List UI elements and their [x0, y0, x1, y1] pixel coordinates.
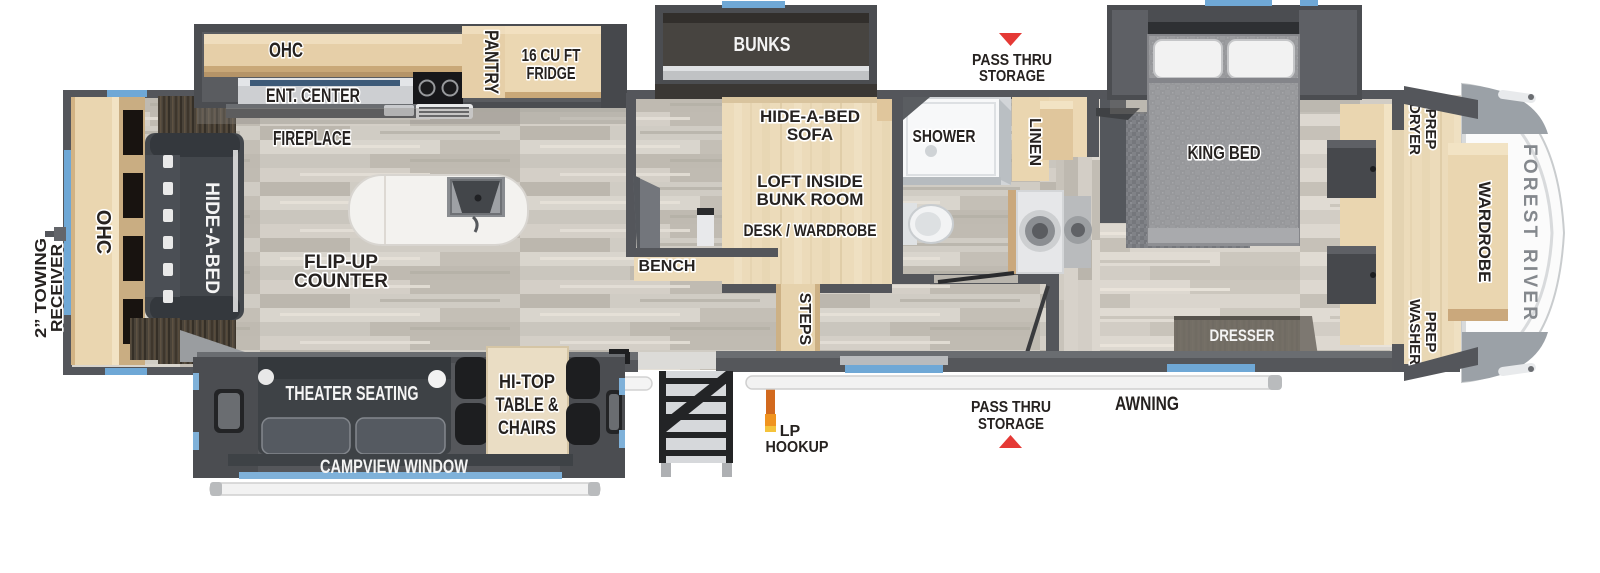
- svg-text:PREP: PREP: [1422, 312, 1439, 353]
- svg-text:BUNKS: BUNKS: [734, 34, 791, 56]
- svg-text:LINEN: LINEN: [1026, 118, 1043, 166]
- svg-text:OHC: OHC: [92, 210, 114, 254]
- svg-text:HIDE-A-BED: HIDE-A-BED: [201, 182, 222, 294]
- svg-text:FIREPLACE: FIREPLACE: [273, 128, 351, 150]
- svg-text:DESK / WARDROBE: DESK / WARDROBE: [744, 221, 877, 240]
- svg-text:FLIP-UP: FLIP-UP: [304, 252, 378, 273]
- svg-text:AWNING: AWNING: [1115, 394, 1179, 415]
- svg-text:PANTRY: PANTRY: [480, 30, 501, 94]
- svg-text:TABLE &: TABLE &: [496, 395, 559, 416]
- svg-text:ENT. CENTER: ENT. CENTER: [266, 86, 360, 107]
- svg-text:SHOWER: SHOWER: [913, 126, 976, 146]
- svg-text:HI-TOP: HI-TOP: [499, 372, 555, 393]
- svg-text:BUNK ROOM: BUNK ROOM: [757, 190, 864, 209]
- svg-text:LOFT INSIDE: LOFT INSIDE: [757, 172, 863, 191]
- svg-text:16 CU FT: 16 CU FT: [522, 45, 581, 65]
- svg-text:SOFA: SOFA: [787, 125, 833, 144]
- svg-text:STORAGE: STORAGE: [978, 416, 1044, 433]
- svg-text:FOREST RIVER: FOREST RIVER: [1519, 144, 1540, 320]
- svg-text:OHC: OHC: [269, 39, 303, 62]
- svg-text:DRESSER: DRESSER: [1210, 326, 1275, 345]
- svg-text:THEATER SEATING: THEATER SEATING: [286, 383, 419, 405]
- svg-text:CAMPVIEW WINDOW: CAMPVIEW WINDOW: [320, 457, 468, 478]
- svg-text:WASHER: WASHER: [1406, 299, 1423, 365]
- svg-text:STEPS: STEPS: [796, 293, 813, 346]
- svg-text:WARDROBE: WARDROBE: [1475, 181, 1494, 282]
- svg-text:LP: LP: [780, 423, 801, 440]
- svg-text:HIDE-A-BED: HIDE-A-BED: [760, 107, 860, 126]
- svg-text:KING BED: KING BED: [1188, 143, 1261, 163]
- svg-text:PASS THRU: PASS THRU: [972, 52, 1052, 69]
- svg-text:HOOKUP: HOOKUP: [766, 439, 829, 456]
- svg-text:DRYER: DRYER: [1406, 103, 1423, 155]
- svg-text:2” TOWING: 2” TOWING: [33, 238, 50, 338]
- svg-text:FRIDGE: FRIDGE: [527, 63, 576, 83]
- svg-text:BENCH: BENCH: [639, 258, 696, 275]
- svg-text:PREP: PREP: [1422, 109, 1439, 150]
- svg-text:PASS THRU: PASS THRU: [971, 399, 1051, 416]
- svg-text:CHAIRS: CHAIRS: [498, 418, 556, 439]
- svg-text:STORAGE: STORAGE: [979, 68, 1045, 85]
- svg-text:RECEIVER: RECEIVER: [49, 244, 66, 332]
- svg-text:COUNTER: COUNTER: [294, 271, 388, 292]
